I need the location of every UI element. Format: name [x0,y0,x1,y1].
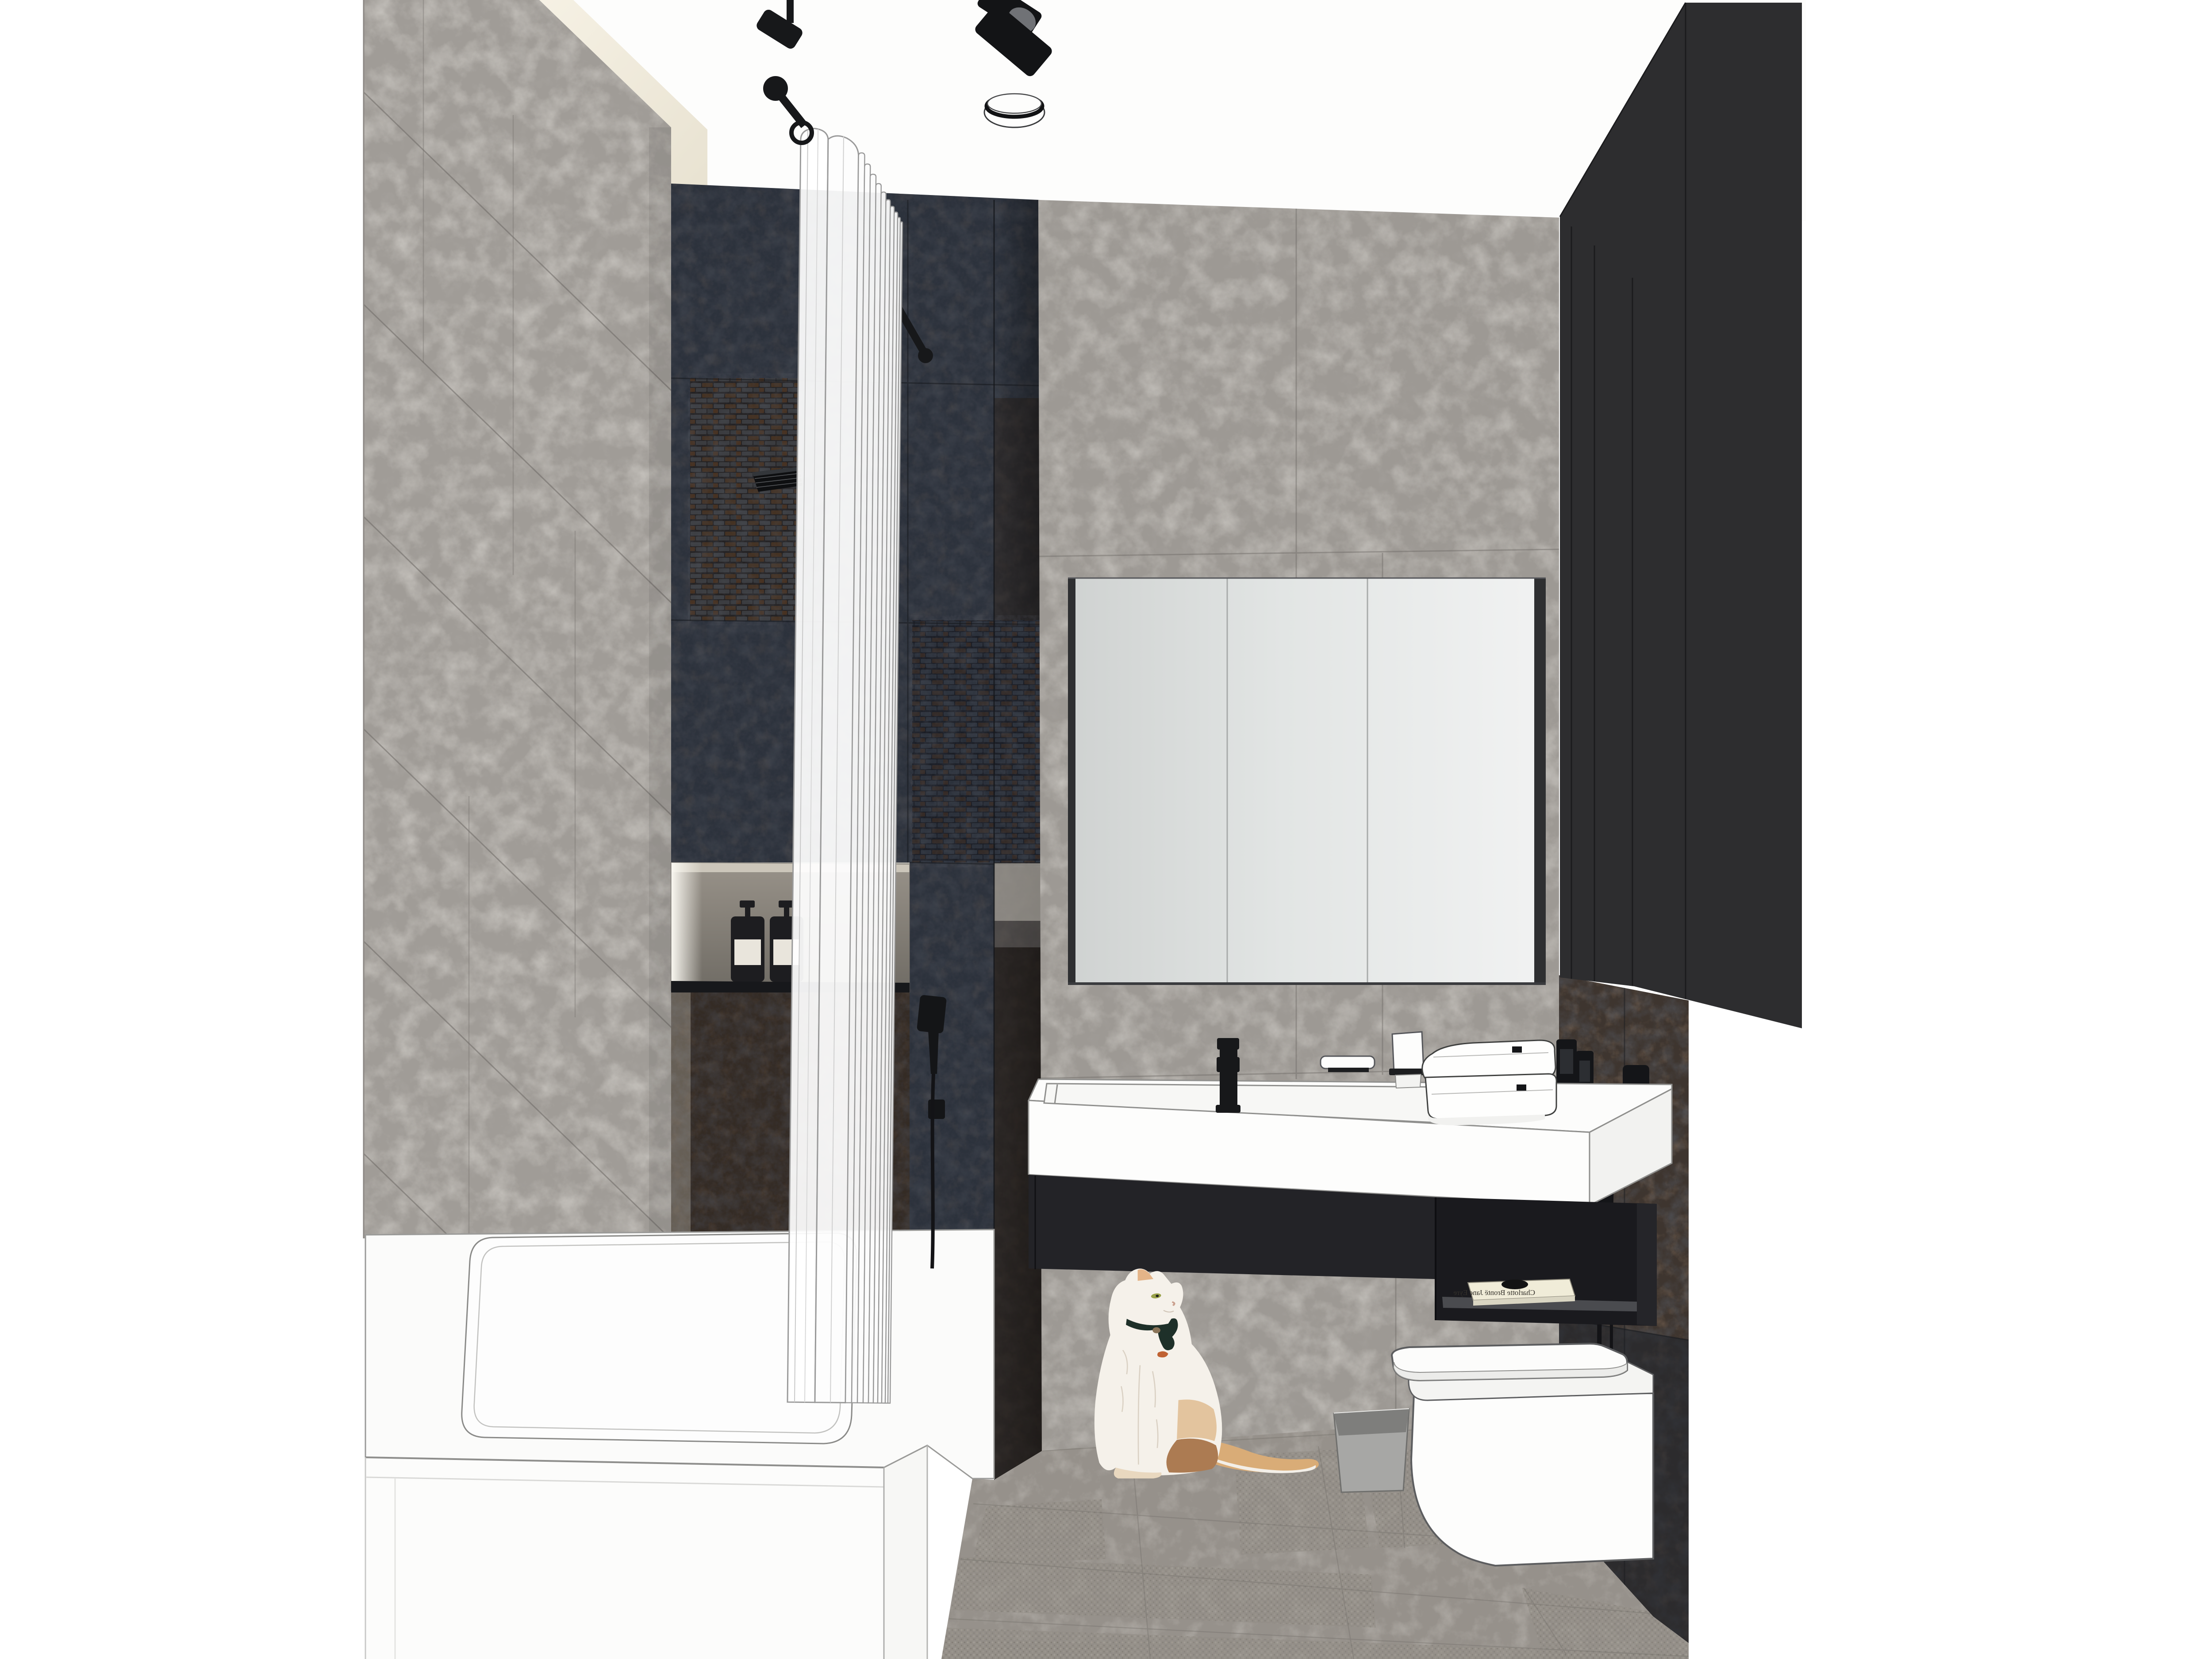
svg-text:Charlotte Brontë Jane Eyre: Charlotte Brontë Jane Eyre [1453,1288,1535,1297]
